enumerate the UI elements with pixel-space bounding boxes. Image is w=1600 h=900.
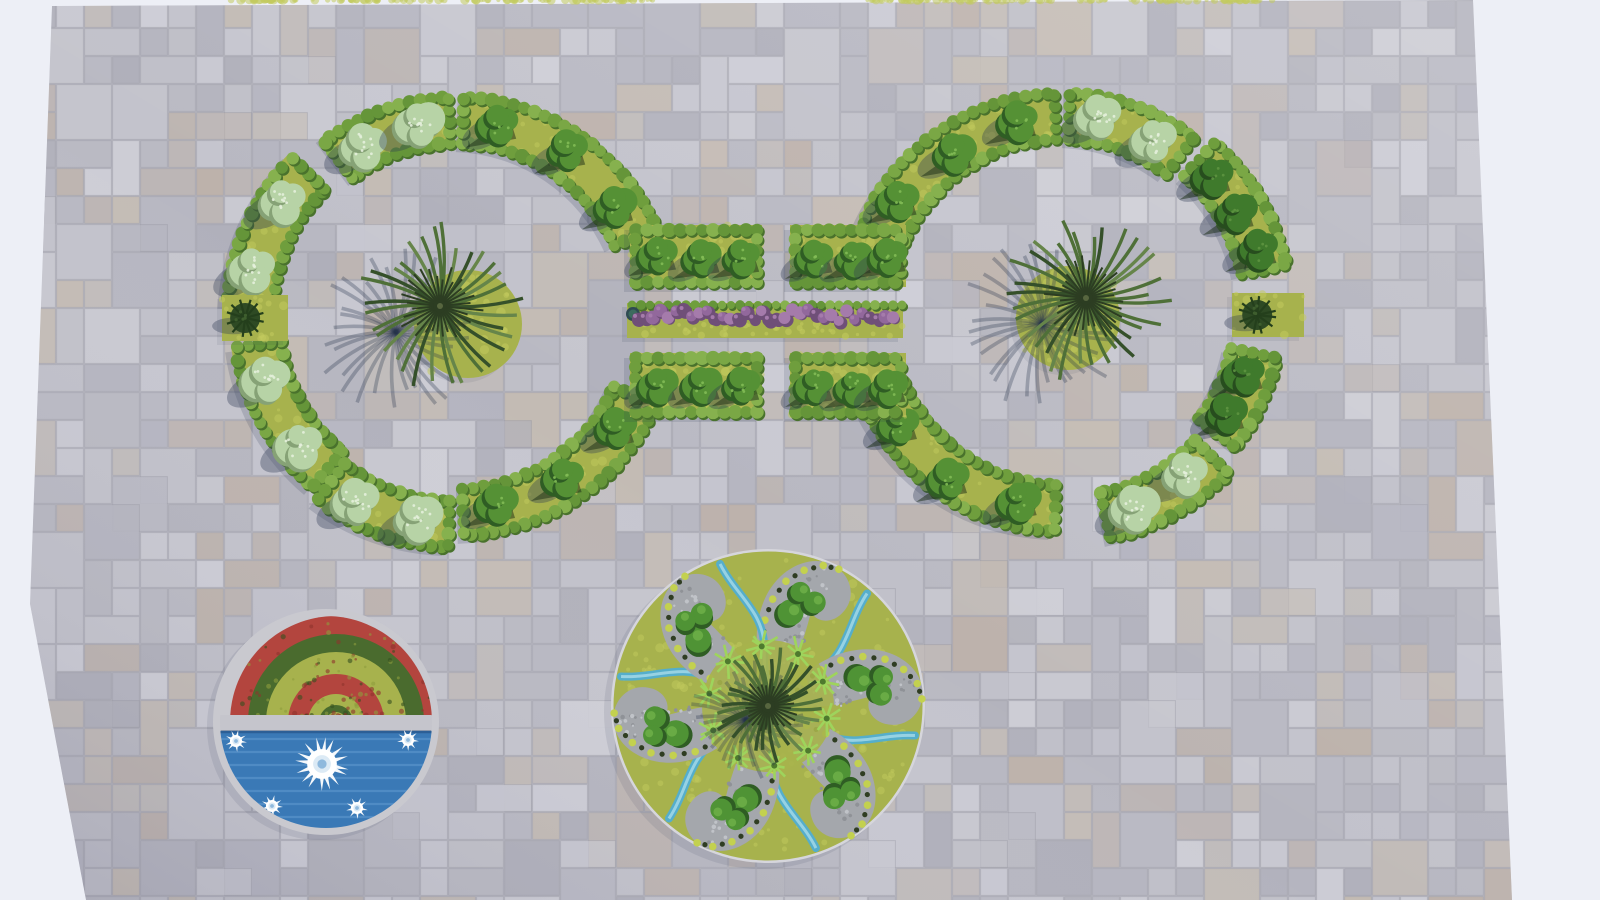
- landscape-render: [0, 0, 1600, 900]
- hedge-bar: [776, 351, 909, 422]
- central-connector-parterre: [619, 222, 908, 422]
- purple-flower-strip: [622, 300, 908, 342]
- hedge-bar: [619, 222, 764, 292]
- hedge-bar: [619, 351, 765, 422]
- scene-canvas: [0, 0, 1600, 900]
- side-lawn-patch: [1224, 290, 1306, 341]
- side-lawn-patch: [212, 295, 288, 345]
- hedge-bar: [776, 223, 909, 292]
